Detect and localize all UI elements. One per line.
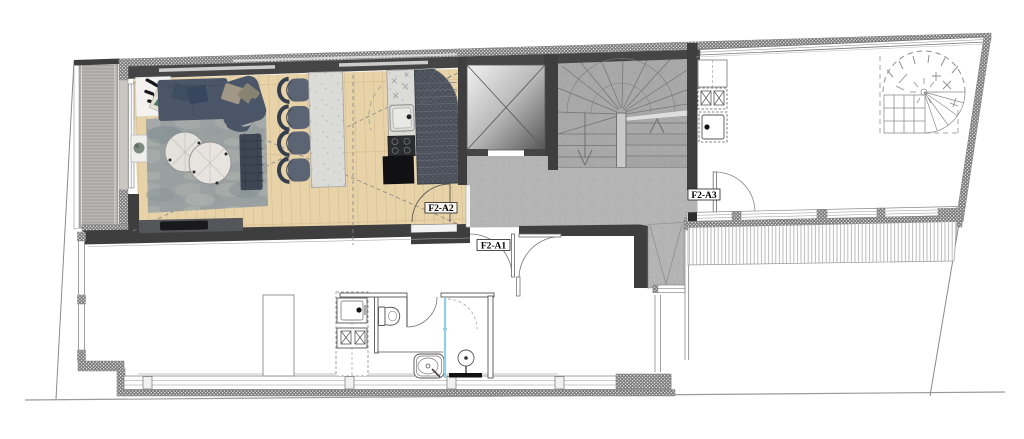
svg-text:F2-A1: F2-A1 <box>481 242 507 252</box>
svg-text:F2-A2: F2-A2 <box>428 204 454 214</box>
svg-text:F2-A3: F2-A3 <box>691 191 717 201</box>
